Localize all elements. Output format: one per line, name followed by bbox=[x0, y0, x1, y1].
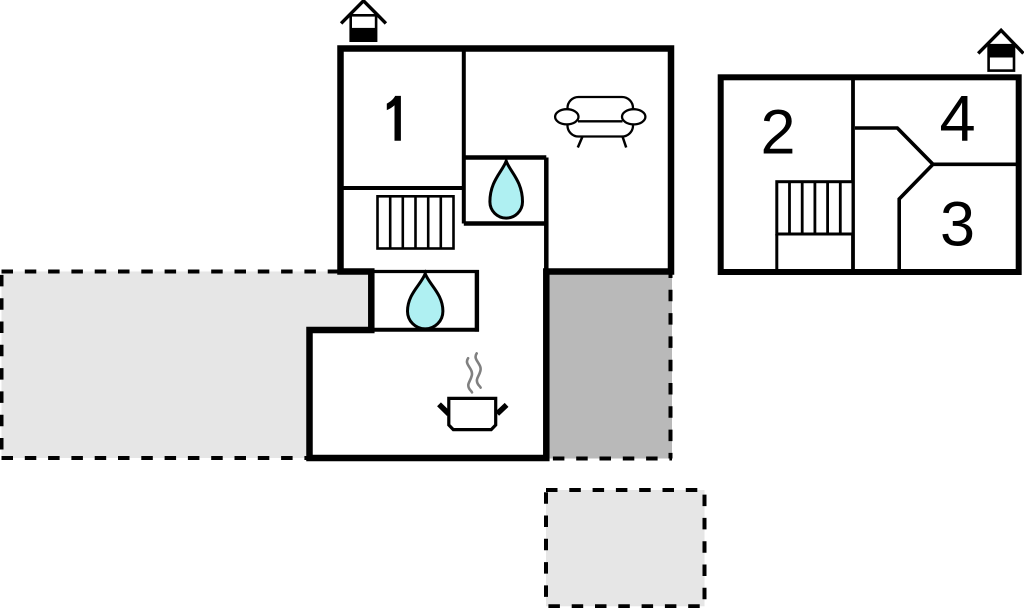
svg-text:4: 4 bbox=[940, 82, 976, 155]
svg-text:3: 3 bbox=[940, 190, 975, 260]
svg-text:2: 2 bbox=[760, 98, 795, 168]
